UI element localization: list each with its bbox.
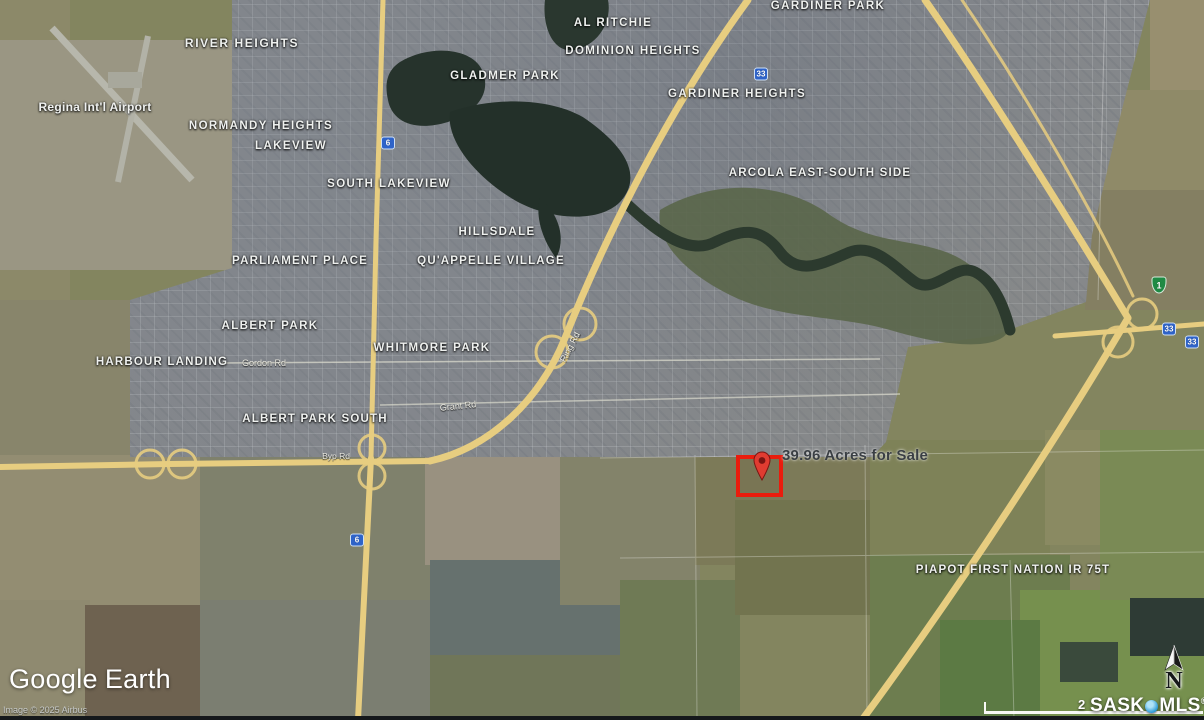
neighborhood-label: NORMANDY HEIGHTS xyxy=(189,120,333,132)
neighborhood-label: Regina Int'l Airport xyxy=(38,100,151,114)
neighborhood-label: HARBOUR LANDING xyxy=(96,356,228,368)
placemark-pin-icon[interactable] xyxy=(753,451,771,481)
road-label: Gordon Rd xyxy=(242,358,286,368)
sask-mls-dot-icon xyxy=(1145,700,1158,713)
parcel-sale-label: 39.96 Acres for Sale xyxy=(782,447,928,464)
neighborhood-label: LAKEVIEW xyxy=(255,140,327,152)
google-earth-logo-word2: Earth xyxy=(105,664,171,694)
neighborhood-label: GARDINER PARK xyxy=(771,0,885,12)
google-earth-map-viewport[interactable]: GARDINER PARKRIVER HEIGHTSAL RITCHIEDOMI… xyxy=(0,0,1204,720)
neighborhood-label: GARDINER HEIGHTS xyxy=(668,88,806,100)
neighborhood-label: HILLSDALE xyxy=(458,226,535,238)
sask-mls-word1: SASK xyxy=(1090,695,1144,717)
highway-shield-6: 6 xyxy=(350,534,364,547)
imagery-attribution: Image © 2025 Airbus xyxy=(3,705,87,715)
golf-course-shape xyxy=(660,188,1010,345)
road-label: Byp Rd xyxy=(322,451,350,461)
highway-shield-6: 6 xyxy=(381,137,395,150)
highway-shield-33: 33 xyxy=(754,68,768,81)
scale-bar-label: 2 xyxy=(1078,697,1085,712)
north-letter: N xyxy=(1152,671,1196,691)
neighborhood-label: RIVER HEIGHTS xyxy=(185,36,299,50)
sask-mls-word2: MLS xyxy=(1159,695,1200,717)
neighborhood-label: DOMINION HEIGHTS xyxy=(565,45,701,57)
neighborhood-label: SOUTH LAKEVIEW xyxy=(327,178,451,190)
google-earth-logo: GoogleEarth xyxy=(9,664,171,695)
neighborhood-label: QU'APPELLE VILLAGE xyxy=(417,255,565,267)
neighborhood-label: ALBERT PARK xyxy=(222,320,319,332)
neighborhood-label: PARLIAMENT PLACE xyxy=(232,255,368,267)
highway-shield-33: 33 xyxy=(1162,323,1176,336)
sask-mls-watermark: SASK MLS ® xyxy=(1090,695,1204,717)
neighborhood-label: PIAPOT FIRST NATION IR 75T xyxy=(916,564,1111,576)
neighborhood-label: ARCOLA EAST-SOUTH SIDE xyxy=(729,167,912,179)
neighborhood-label: GLADMER PARK xyxy=(450,70,560,82)
neighborhood-label: ALBERT PARK SOUTH xyxy=(242,413,387,425)
airport-terminal-shape xyxy=(108,72,142,88)
neighborhood-label: AL RITCHIE xyxy=(574,17,652,29)
bottom-edge-strip xyxy=(0,716,1204,720)
neighborhood-label: WHITMORE PARK xyxy=(373,342,490,354)
highway-shield-33: 33 xyxy=(1185,336,1199,349)
google-earth-logo-word1: Google xyxy=(9,664,98,694)
compass-north-indicator: N xyxy=(1152,645,1196,691)
